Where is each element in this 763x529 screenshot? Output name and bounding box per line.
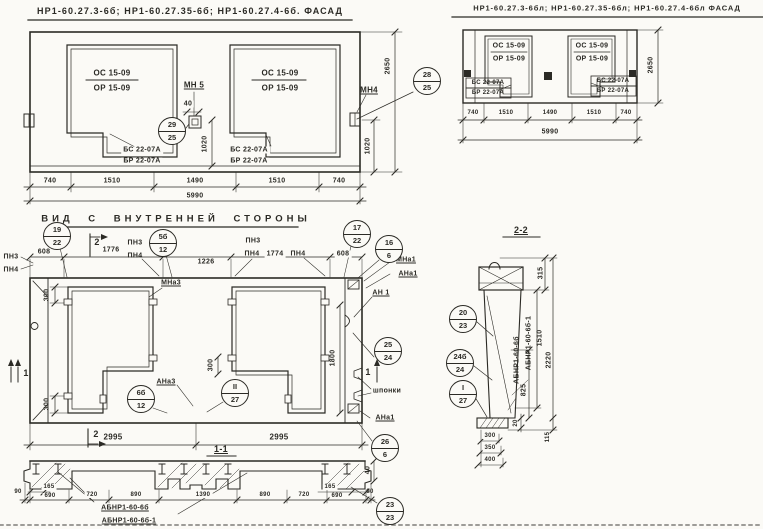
- dim-1020-mid: 1020: [202, 136, 209, 153]
- pn4-a: ПН4: [128, 253, 143, 260]
- s22-dim-400: 400: [483, 457, 498, 463]
- s22-dim-115: 115: [545, 432, 551, 443]
- l-dim-1510-b: 1510: [585, 110, 604, 116]
- l-win2-sill-label: БС 22-07А: [597, 78, 630, 84]
- l-dim-5990: 5990: [540, 129, 561, 136]
- balloon-6b-12: 6б 12: [127, 385, 155, 413]
- win2-frame-label2: ОР 15-09: [262, 84, 299, 93]
- balloon-bottom-value: 12: [150, 244, 176, 257]
- blueprint-sheet: НР1-60.27.3-6б; НР1-60.27.35-6б; НР1-60.…: [0, 0, 763, 529]
- facade-main-lines: [24, 20, 413, 204]
- dim-1226: 1226: [196, 259, 217, 266]
- pn3-a: ПН3: [128, 240, 143, 247]
- facade-l-title: НР1-60.27.3-6бл; НР1-60.27.35-6бл; НР1-6…: [473, 4, 741, 13]
- win2-sill-label: БС 22-07А: [228, 147, 270, 154]
- win2-sill-label2: БР 22-07А: [228, 158, 269, 165]
- s22-dim-20: 20: [513, 419, 519, 426]
- balloon-top-value: 24б: [447, 350, 473, 364]
- win2-frame-label: ОС 15-09: [261, 69, 298, 78]
- balloon-bottom-value: 22: [344, 235, 370, 248]
- dim-608-right: 608: [335, 251, 352, 258]
- balloon-23-23: 23 23: [376, 497, 404, 525]
- balloon-26-6: 26 6: [371, 434, 399, 462]
- balloon-ii-27: II 27: [221, 379, 249, 407]
- win1-sill-label2: БР 22-07А: [121, 158, 162, 165]
- balloon-bottom-value: 27: [450, 395, 476, 408]
- balloon-bottom-value: 23: [377, 512, 403, 525]
- balloon-bottom-value: 6: [372, 449, 398, 462]
- section-2-2-title: 2-2: [514, 225, 528, 235]
- pn4-c: ПН4: [291, 251, 306, 258]
- s22-dim-825: 825: [521, 384, 528, 397]
- win1-frame-label2: ОР 15-09: [94, 84, 131, 93]
- balloon-top-value: 6б: [128, 386, 154, 400]
- an1-label: АН 1: [372, 290, 389, 297]
- l-dim-2650: 2650: [648, 57, 655, 74]
- dim-740-b: 740: [331, 178, 348, 185]
- pn3-b: ПН3: [246, 238, 261, 245]
- dim-300-a: 300: [44, 289, 51, 302]
- balloon-bottom-value: 25: [414, 82, 440, 95]
- s11-dim-40: 40: [365, 466, 372, 474]
- balloon-bottom-value: 6: [376, 250, 402, 263]
- balloon-17-22: 17 22: [343, 220, 371, 248]
- dim-5990: 5990: [185, 193, 206, 200]
- s11-dim-890-a: 890: [129, 492, 144, 498]
- pn4-b: ПН4: [245, 251, 260, 258]
- dim-300-c: 300: [208, 359, 215, 372]
- dim-1800: 1800: [330, 350, 337, 367]
- s11-dim-720-a: 720: [85, 492, 100, 498]
- s22-assembly-label-1: АБНР1-60-6б: [514, 336, 521, 384]
- balloon-20-23: 20 23: [449, 305, 477, 333]
- dim-1020-right: 1020: [365, 138, 372, 155]
- section-marker-1-right: 1: [365, 367, 370, 377]
- dim-1774: 1774: [265, 251, 286, 258]
- l-win1-sill-label2: БР 22-07А: [472, 90, 504, 96]
- dim-2995-left: 2995: [102, 433, 125, 442]
- ana1-right-label: АНа1: [375, 415, 394, 422]
- s22-assembly-label-2: АБНР1-60-6б-1: [526, 316, 533, 371]
- shponki-label: шпонки: [373, 388, 401, 395]
- s11-dim-1390: 1390: [194, 492, 213, 498]
- facade-main-title: НР1-60.27.3-6б; НР1-60.27.35-6б; НР1-60.…: [37, 6, 343, 16]
- s11-assembly-label-1: АБНР1-60-6б: [99, 505, 151, 512]
- dim-2650: 2650: [385, 58, 392, 75]
- s22-dim-1510: 1510: [537, 330, 544, 347]
- l-win2-frame-label: ОС 15-09: [576, 43, 609, 50]
- pn3-far-left: ПН3: [4, 254, 19, 261]
- ana1-top-label: АНа1: [398, 271, 417, 278]
- s11-dim-90-left: 90: [14, 489, 21, 495]
- balloon-bottom-value: 23: [450, 320, 476, 333]
- dim-2995-right: 2995: [268, 433, 291, 442]
- dim-1490: 1490: [185, 178, 206, 185]
- balloon-bottom-value: 22: [44, 237, 70, 250]
- l-win1-frame-label: ОС 15-09: [493, 43, 526, 50]
- balloon-19-22: 19 22: [43, 222, 71, 250]
- balloon-i-27: I 27: [449, 380, 477, 408]
- ana3-label: АНа3: [156, 379, 175, 386]
- s11-dim-690-left: 690: [43, 493, 58, 499]
- balloon-top-value: 20: [450, 306, 476, 320]
- section-marker-2-bottom: 2: [93, 429, 98, 439]
- balloon-top-value: 23: [377, 498, 403, 512]
- balloon-5b-12: 5б 12: [149, 229, 177, 257]
- mna3-label: МНа3: [161, 280, 181, 287]
- s22-dim-350: 350: [483, 445, 498, 451]
- s11-assembly-label-2: АБНР1-60-6б-1: [100, 518, 159, 525]
- balloon-bottom-value: 27: [222, 394, 248, 407]
- s11-dim-165-right: 165: [323, 484, 338, 490]
- dim-1776: 1776: [101, 247, 122, 254]
- l-win1-sill-label: БС 22-07А: [472, 80, 505, 86]
- win1-sill-label: БС 22-07А: [121, 147, 163, 154]
- dim-40: 40: [182, 101, 194, 108]
- l-dim-1510-a: 1510: [497, 110, 516, 116]
- balloon-top-value: 19: [44, 223, 70, 237]
- pn4-far-left: ПН4: [4, 267, 19, 274]
- dim-300-b: 300: [44, 398, 51, 411]
- dim-608-left: 608: [36, 249, 53, 256]
- l-win1-frame-label2: ОР 15-09: [493, 56, 525, 63]
- balloon-28-25: 28 25: [413, 67, 441, 95]
- balloon-top-value: 17: [344, 221, 370, 235]
- balloon-top-value: 25: [375, 338, 401, 352]
- balloon-bottom-value: 24: [375, 352, 401, 365]
- balloon-25-24: 25 24: [374, 337, 402, 365]
- s22-dim-315: 315: [538, 267, 545, 280]
- s11-dim-690-right: 690: [330, 493, 345, 499]
- balloon-top-value: II: [222, 380, 248, 394]
- inner-view-title: ВИД С ВНУТРЕННЕЙ СТОРОНЫ: [41, 214, 311, 225]
- l-win2-sill-label2: БР 22-07А: [597, 88, 629, 94]
- balloon-top-value: 16: [376, 236, 402, 250]
- s11-dim-720-b: 720: [297, 492, 312, 498]
- section-marker-2-top: 2: [94, 237, 99, 247]
- balloon-24b-24: 24б 24: [446, 349, 474, 377]
- mn5-label: МН 5: [184, 81, 204, 90]
- balloon-16-6: 16 6: [375, 235, 403, 263]
- dim-1510-a: 1510: [102, 178, 123, 185]
- dim-1510-b: 1510: [267, 178, 288, 185]
- s11-dim-90-right: 90: [366, 489, 373, 495]
- l-dim-740-a: 740: [466, 110, 481, 116]
- s22-dim-2220: 2220: [546, 352, 553, 369]
- l-dim-1490: 1490: [541, 110, 560, 116]
- dim-740-a: 740: [42, 178, 59, 185]
- section-1-1-title: 1-1: [214, 444, 228, 454]
- balloon-top-value: 29: [159, 118, 185, 132]
- balloon-top-value: 26: [372, 435, 398, 449]
- s11-dim-165-left: 165: [42, 484, 57, 490]
- l-win2-frame-label2: ОР 15-09: [576, 56, 608, 63]
- balloon-top-value: 28: [414, 68, 440, 82]
- balloon-bottom-value: 25: [159, 132, 185, 145]
- balloon-bottom-value: 24: [447, 364, 473, 377]
- balloon-top-value: I: [450, 381, 476, 395]
- balloon-29-25: 29 25: [158, 117, 186, 145]
- win1-frame-label: ОС 15-09: [93, 69, 130, 78]
- s11-dim-890-b: 890: [258, 492, 273, 498]
- s22-dim-300: 300: [483, 433, 498, 439]
- balloon-top-value: 5б: [150, 230, 176, 244]
- balloon-bottom-value: 12: [128, 400, 154, 413]
- mn4-label: МН4: [360, 86, 378, 95]
- section-marker-1-left: 1: [23, 368, 28, 378]
- l-dim-740-b: 740: [619, 110, 634, 116]
